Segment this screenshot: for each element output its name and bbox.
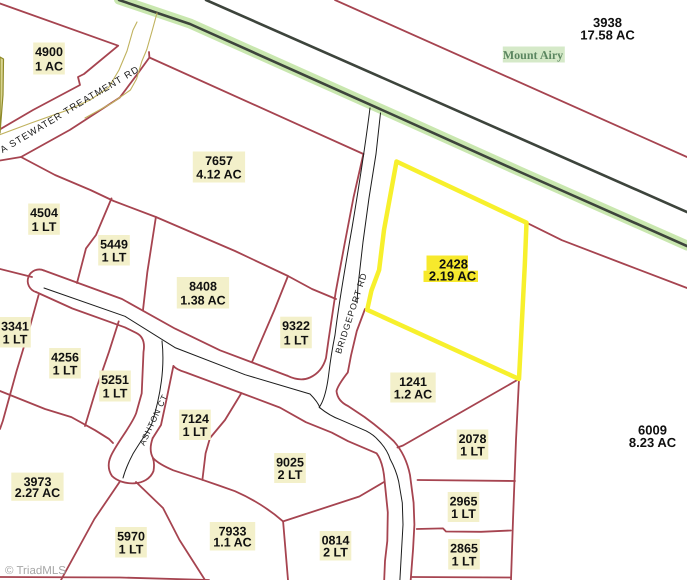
- svg-text:1 LT: 1 LT: [103, 387, 128, 401]
- svg-text:1 LT: 1 LT: [183, 425, 208, 439]
- svg-text:2865: 2865: [450, 542, 478, 556]
- svg-text:8.23 AC: 8.23 AC: [629, 435, 677, 450]
- svg-text:1.1 AC: 1.1 AC: [213, 536, 251, 550]
- svg-text:1.38 AC: 1.38 AC: [180, 294, 225, 308]
- svg-text:4.12 AC: 4.12 AC: [196, 168, 241, 182]
- svg-text:2.27 AC: 2.27 AC: [15, 486, 60, 500]
- svg-text:1 LT: 1 LT: [284, 333, 309, 347]
- svg-text:7124: 7124: [181, 412, 209, 426]
- svg-text:2.19 AC: 2.19 AC: [429, 269, 477, 284]
- svg-text:1 LT: 1 LT: [460, 445, 485, 459]
- svg-text:© TriadMLS: © TriadMLS: [5, 565, 66, 577]
- svg-text:2 LT: 2 LT: [323, 546, 348, 560]
- svg-text:2 LT: 2 LT: [278, 468, 303, 482]
- svg-text:5251: 5251: [101, 373, 129, 387]
- svg-text:4900: 4900: [35, 45, 63, 59]
- svg-text:9322: 9322: [282, 319, 310, 333]
- svg-text:5449: 5449: [100, 238, 128, 252]
- svg-text:1 LT: 1 LT: [53, 364, 78, 378]
- svg-text:4504: 4504: [30, 206, 58, 220]
- svg-text:7657: 7657: [205, 154, 233, 168]
- svg-text:1 LT: 1 LT: [452, 555, 477, 569]
- svg-text:8408: 8408: [189, 280, 217, 294]
- svg-text:1 LT: 1 LT: [3, 333, 28, 347]
- svg-text:1 AC: 1 AC: [35, 60, 63, 74]
- svg-text:Mount Airy: Mount Airy: [503, 48, 563, 62]
- svg-text:3341: 3341: [1, 320, 29, 334]
- svg-text:4256: 4256: [51, 351, 79, 365]
- svg-text:1 LT: 1 LT: [119, 543, 144, 557]
- svg-text:1 LT: 1 LT: [32, 220, 57, 234]
- svg-text:17.58 AC: 17.58 AC: [580, 28, 635, 43]
- svg-text:1 LT: 1 LT: [451, 507, 476, 521]
- svg-text:5970: 5970: [117, 530, 145, 544]
- svg-text:1.2 AC: 1.2 AC: [394, 388, 432, 402]
- svg-text:1 LT: 1 LT: [102, 251, 127, 265]
